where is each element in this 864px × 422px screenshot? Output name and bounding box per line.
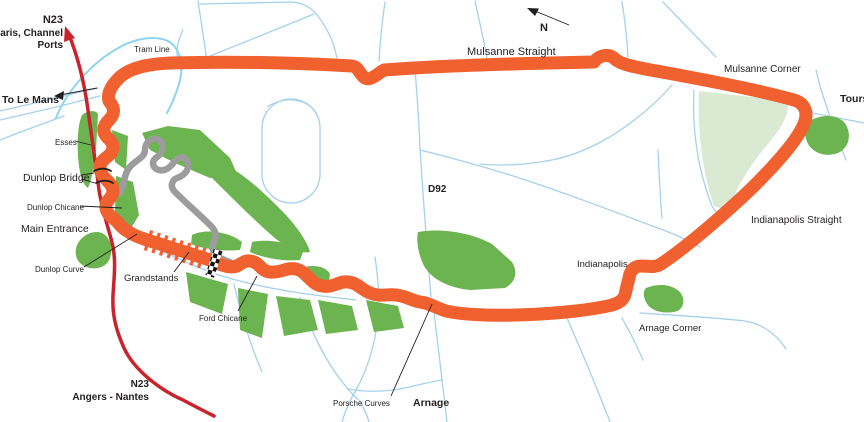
paris-channel-label: Paris, Channel (0, 28, 63, 39)
road-north-6 (622, 2, 628, 57)
green-parcel-g (318, 300, 358, 334)
green-triangle-center (417, 231, 515, 291)
n23-arrow-icon (64, 26, 75, 42)
dunlop-chicane-label: Dunlop Chicane (27, 203, 84, 212)
mulsanne-straight-label: Mulsanne Straight (467, 46, 556, 58)
indianapolis-straight-label: Indianapolis Straight (751, 215, 842, 226)
indianapolis-label: Indianapolis (577, 259, 628, 270)
road-north-3 (210, 14, 314, 56)
porsche-curves-label: Porsche Curves (333, 399, 390, 408)
mulsanne-corner-label: Mulsanne Corner (724, 64, 801, 75)
green-arnage (644, 285, 684, 313)
esses-label: Esses (55, 138, 77, 147)
angers-nantes-label: Angers - Nantes (72, 392, 149, 403)
green-parcel-h (366, 300, 404, 332)
to-le-mans-label: To Le Mans (2, 94, 59, 106)
road-diagonal-center (420, 150, 700, 247)
aerodrome-oval (262, 99, 320, 203)
road-south-east (567, 318, 610, 422)
to-le-mans-arrow-line (60, 88, 97, 95)
road-south-2 (348, 380, 442, 391)
oval-inner-arc (267, 100, 317, 114)
arnage-label: Arnage (413, 397, 449, 409)
ford-chicane-label: Ford Chicane (199, 314, 248, 323)
road-center-east (480, 85, 672, 165)
green-parcel-f (276, 296, 318, 336)
main-entrance-label: Main Entrance (21, 223, 89, 235)
green-tours (805, 116, 849, 155)
north-arrow-icon (527, 8, 569, 25)
green-parcel-d (186, 272, 228, 314)
road-d92-upper (415, 68, 420, 148)
green-parcel-e (238, 288, 268, 338)
road-vertical-east (658, 150, 662, 218)
road-nw (0, 116, 64, 140)
compass-n-label: N (540, 22, 548, 34)
road-north-4 (379, 2, 385, 61)
n23-south-label: N23 (131, 379, 150, 390)
road-north-2 (200, 2, 337, 58)
road-north-7 (663, 2, 716, 57)
oval-outline (262, 99, 320, 203)
arnage-corner-label: Arnage Corner (639, 323, 701, 334)
n23-north-label: N23 (43, 14, 63, 26)
grandstands-label: Grandstands (124, 273, 179, 284)
d92-label: D92 (428, 184, 447, 195)
green-main-entrance (76, 232, 112, 268)
le-mans-circuit-map: N23 Paris, Channel Ports To Le Mans Tram… (0, 0, 864, 422)
n23-highway (64, 26, 214, 416)
dunlop-bridge-label: Dunlop Bridge (23, 172, 90, 184)
circuit-map-canvas: N23 Paris, Channel Ports To Le Mans Tram… (0, 0, 864, 422)
tram-line-label: Tram Line (134, 45, 170, 54)
ports-label: Ports (37, 40, 63, 51)
dunlop-curve-label: Dunlop Curve (35, 265, 84, 274)
tours-label: Tours (840, 93, 864, 105)
road-north-1 (198, 1, 207, 61)
